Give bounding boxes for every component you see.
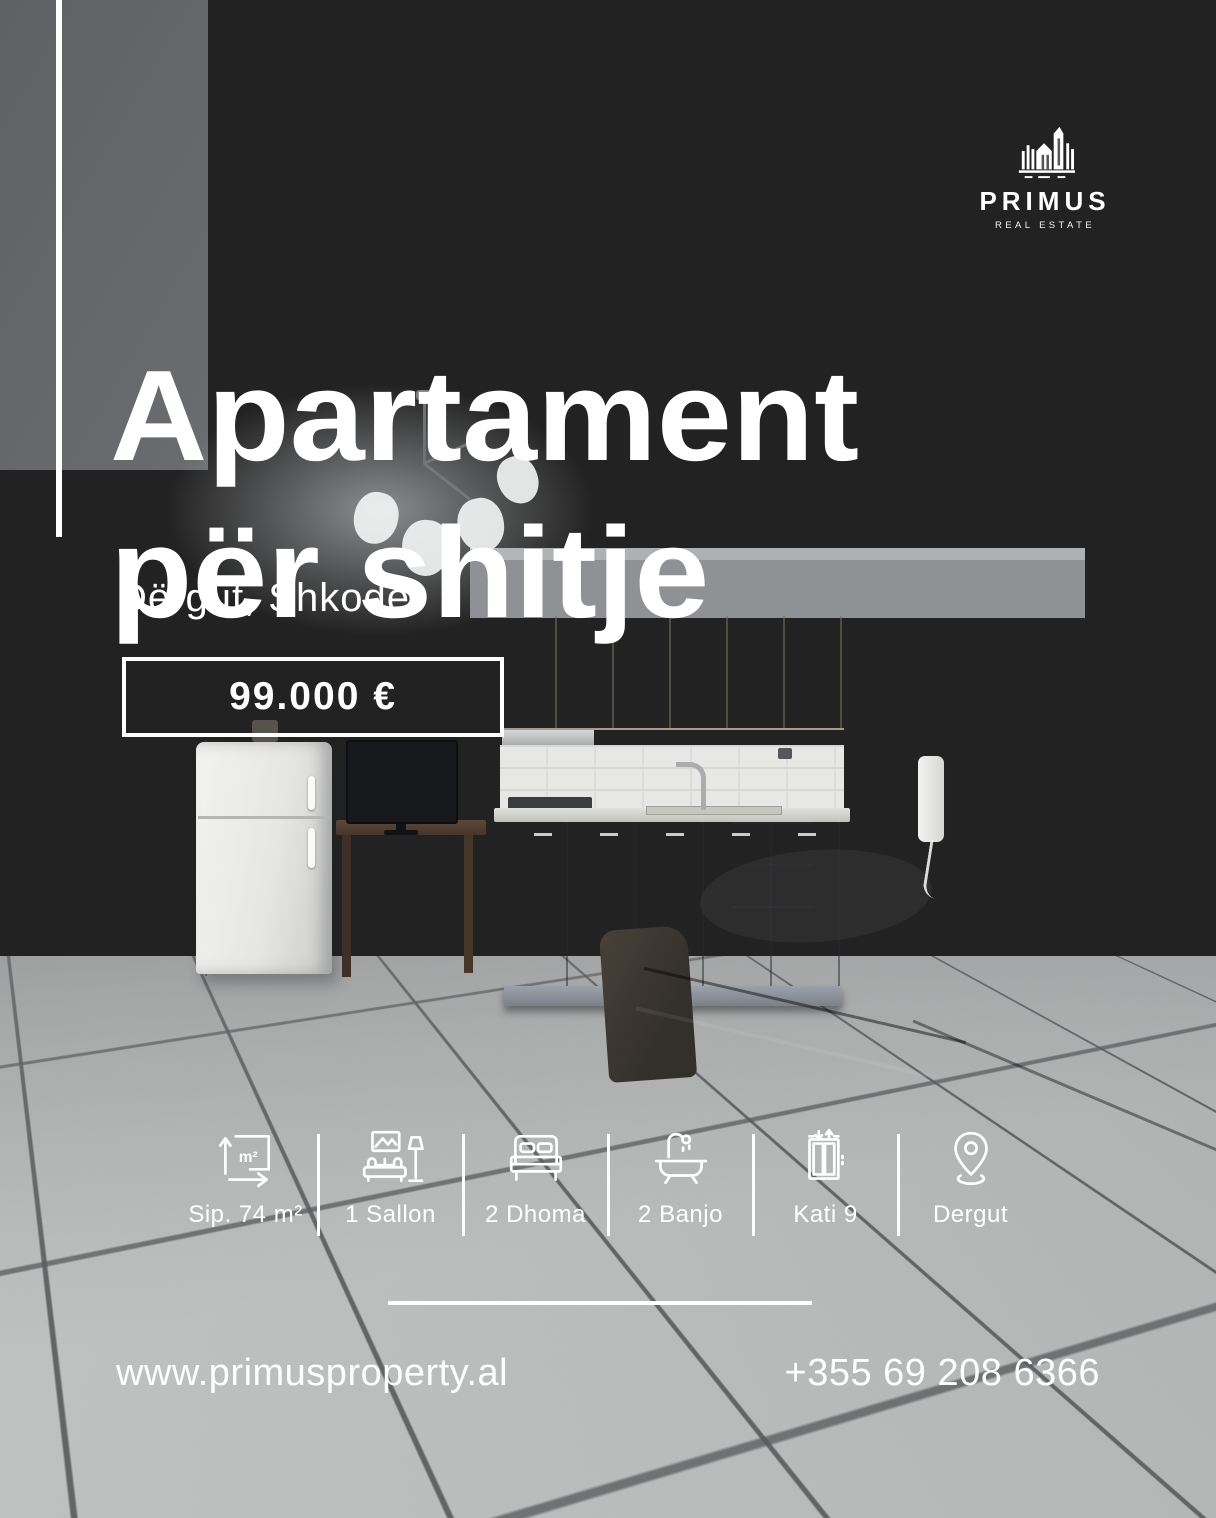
- feature-baths: 2 Banjo: [610, 1126, 752, 1236]
- footer: www.primusproperty.al +355 69 208 6366: [116, 1352, 1100, 1395]
- price-value: 99.000 €: [229, 675, 397, 719]
- elevator-icon: [793, 1126, 859, 1192]
- feature-floor: Kati 9: [755, 1126, 897, 1236]
- accent-vertical-line: [56, 0, 62, 537]
- feature-floor-label: Kati 9: [793, 1201, 857, 1229]
- brand-name: PRIMUS: [978, 186, 1112, 217]
- website-url: www.primusproperty.al: [116, 1352, 508, 1395]
- area-icon-unit: m²: [238, 1149, 257, 1166]
- real-estate-poster: PRIMUS REAL ESTATE Apartament për shitje…: [0, 0, 1216, 1518]
- brand-logo: PRIMUS REAL ESTATE: [978, 122, 1112, 231]
- location-pin-icon: [938, 1126, 1004, 1192]
- feature-salon: 1 Sallon: [320, 1126, 462, 1236]
- feature-rooms-label: 2 Dhoma: [485, 1201, 586, 1229]
- brand-tagline: REAL ESTATE: [978, 220, 1112, 231]
- poster-content: PRIMUS REAL ESTATE Apartament për shitje…: [0, 0, 1216, 1518]
- feature-salon-label: 1 Sallon: [345, 1201, 436, 1229]
- bathtub-icon: [648, 1126, 714, 1192]
- sofa-lamp-icon: [358, 1126, 424, 1192]
- bed-icon: [503, 1126, 569, 1192]
- price-box: 99.000 €: [122, 657, 504, 737]
- feature-location-label: Dergut: [933, 1201, 1008, 1229]
- feature-row: m² Sip. 74 m² 1 Sallon: [0, 1126, 1216, 1236]
- buildings-icon: [1010, 122, 1080, 180]
- headline-line2: për shitje: [110, 495, 859, 651]
- feature-baths-label: 2 Banjo: [638, 1201, 723, 1229]
- property-location: Dërgut, Shkodër: [118, 576, 424, 621]
- feature-area-label: Sip. 74 m²: [188, 1201, 302, 1229]
- footer-divider-line: [388, 1301, 812, 1305]
- headline-line1: Apartament: [110, 338, 859, 494]
- feature-rooms: 2 Dhoma: [465, 1126, 607, 1236]
- feature-location: Dergut: [900, 1126, 1042, 1236]
- area-icon: m²: [213, 1126, 279, 1192]
- feature-area: m² Sip. 74 m²: [175, 1126, 317, 1236]
- phone-number: +355 69 208 6366: [785, 1352, 1100, 1395]
